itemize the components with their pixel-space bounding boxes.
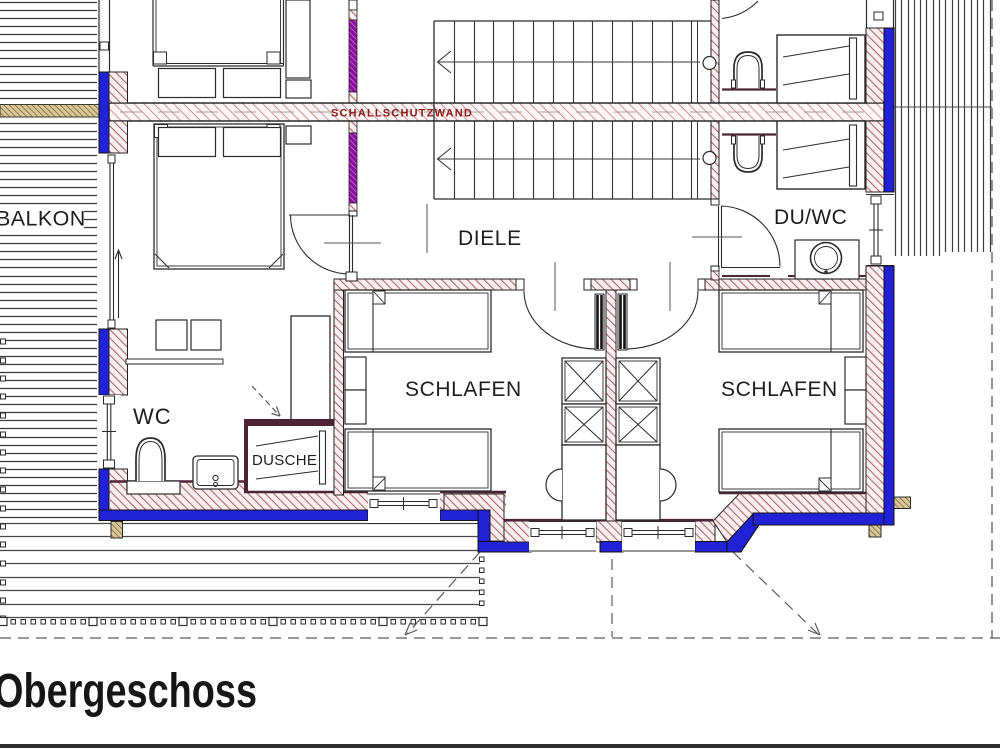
svg-text:WC: WC bbox=[133, 404, 172, 429]
svg-text:DUSCHE: DUSCHE bbox=[252, 452, 317, 469]
svg-text:SCHALLSCHUTZWAND: SCHALLSCHUTZWAND bbox=[331, 108, 473, 120]
svg-text:SCHLAFEN: SCHLAFEN bbox=[721, 378, 838, 401]
svg-text:Obergeschoss: Obergeschoss bbox=[0, 665, 257, 718]
svg-text:SCHLAFEN: SCHLAFEN bbox=[405, 378, 522, 401]
svg-text:DU/WC: DU/WC bbox=[774, 206, 847, 229]
svg-text:DIELE: DIELE bbox=[458, 227, 522, 250]
svg-text:BALKON: BALKON bbox=[0, 207, 86, 231]
